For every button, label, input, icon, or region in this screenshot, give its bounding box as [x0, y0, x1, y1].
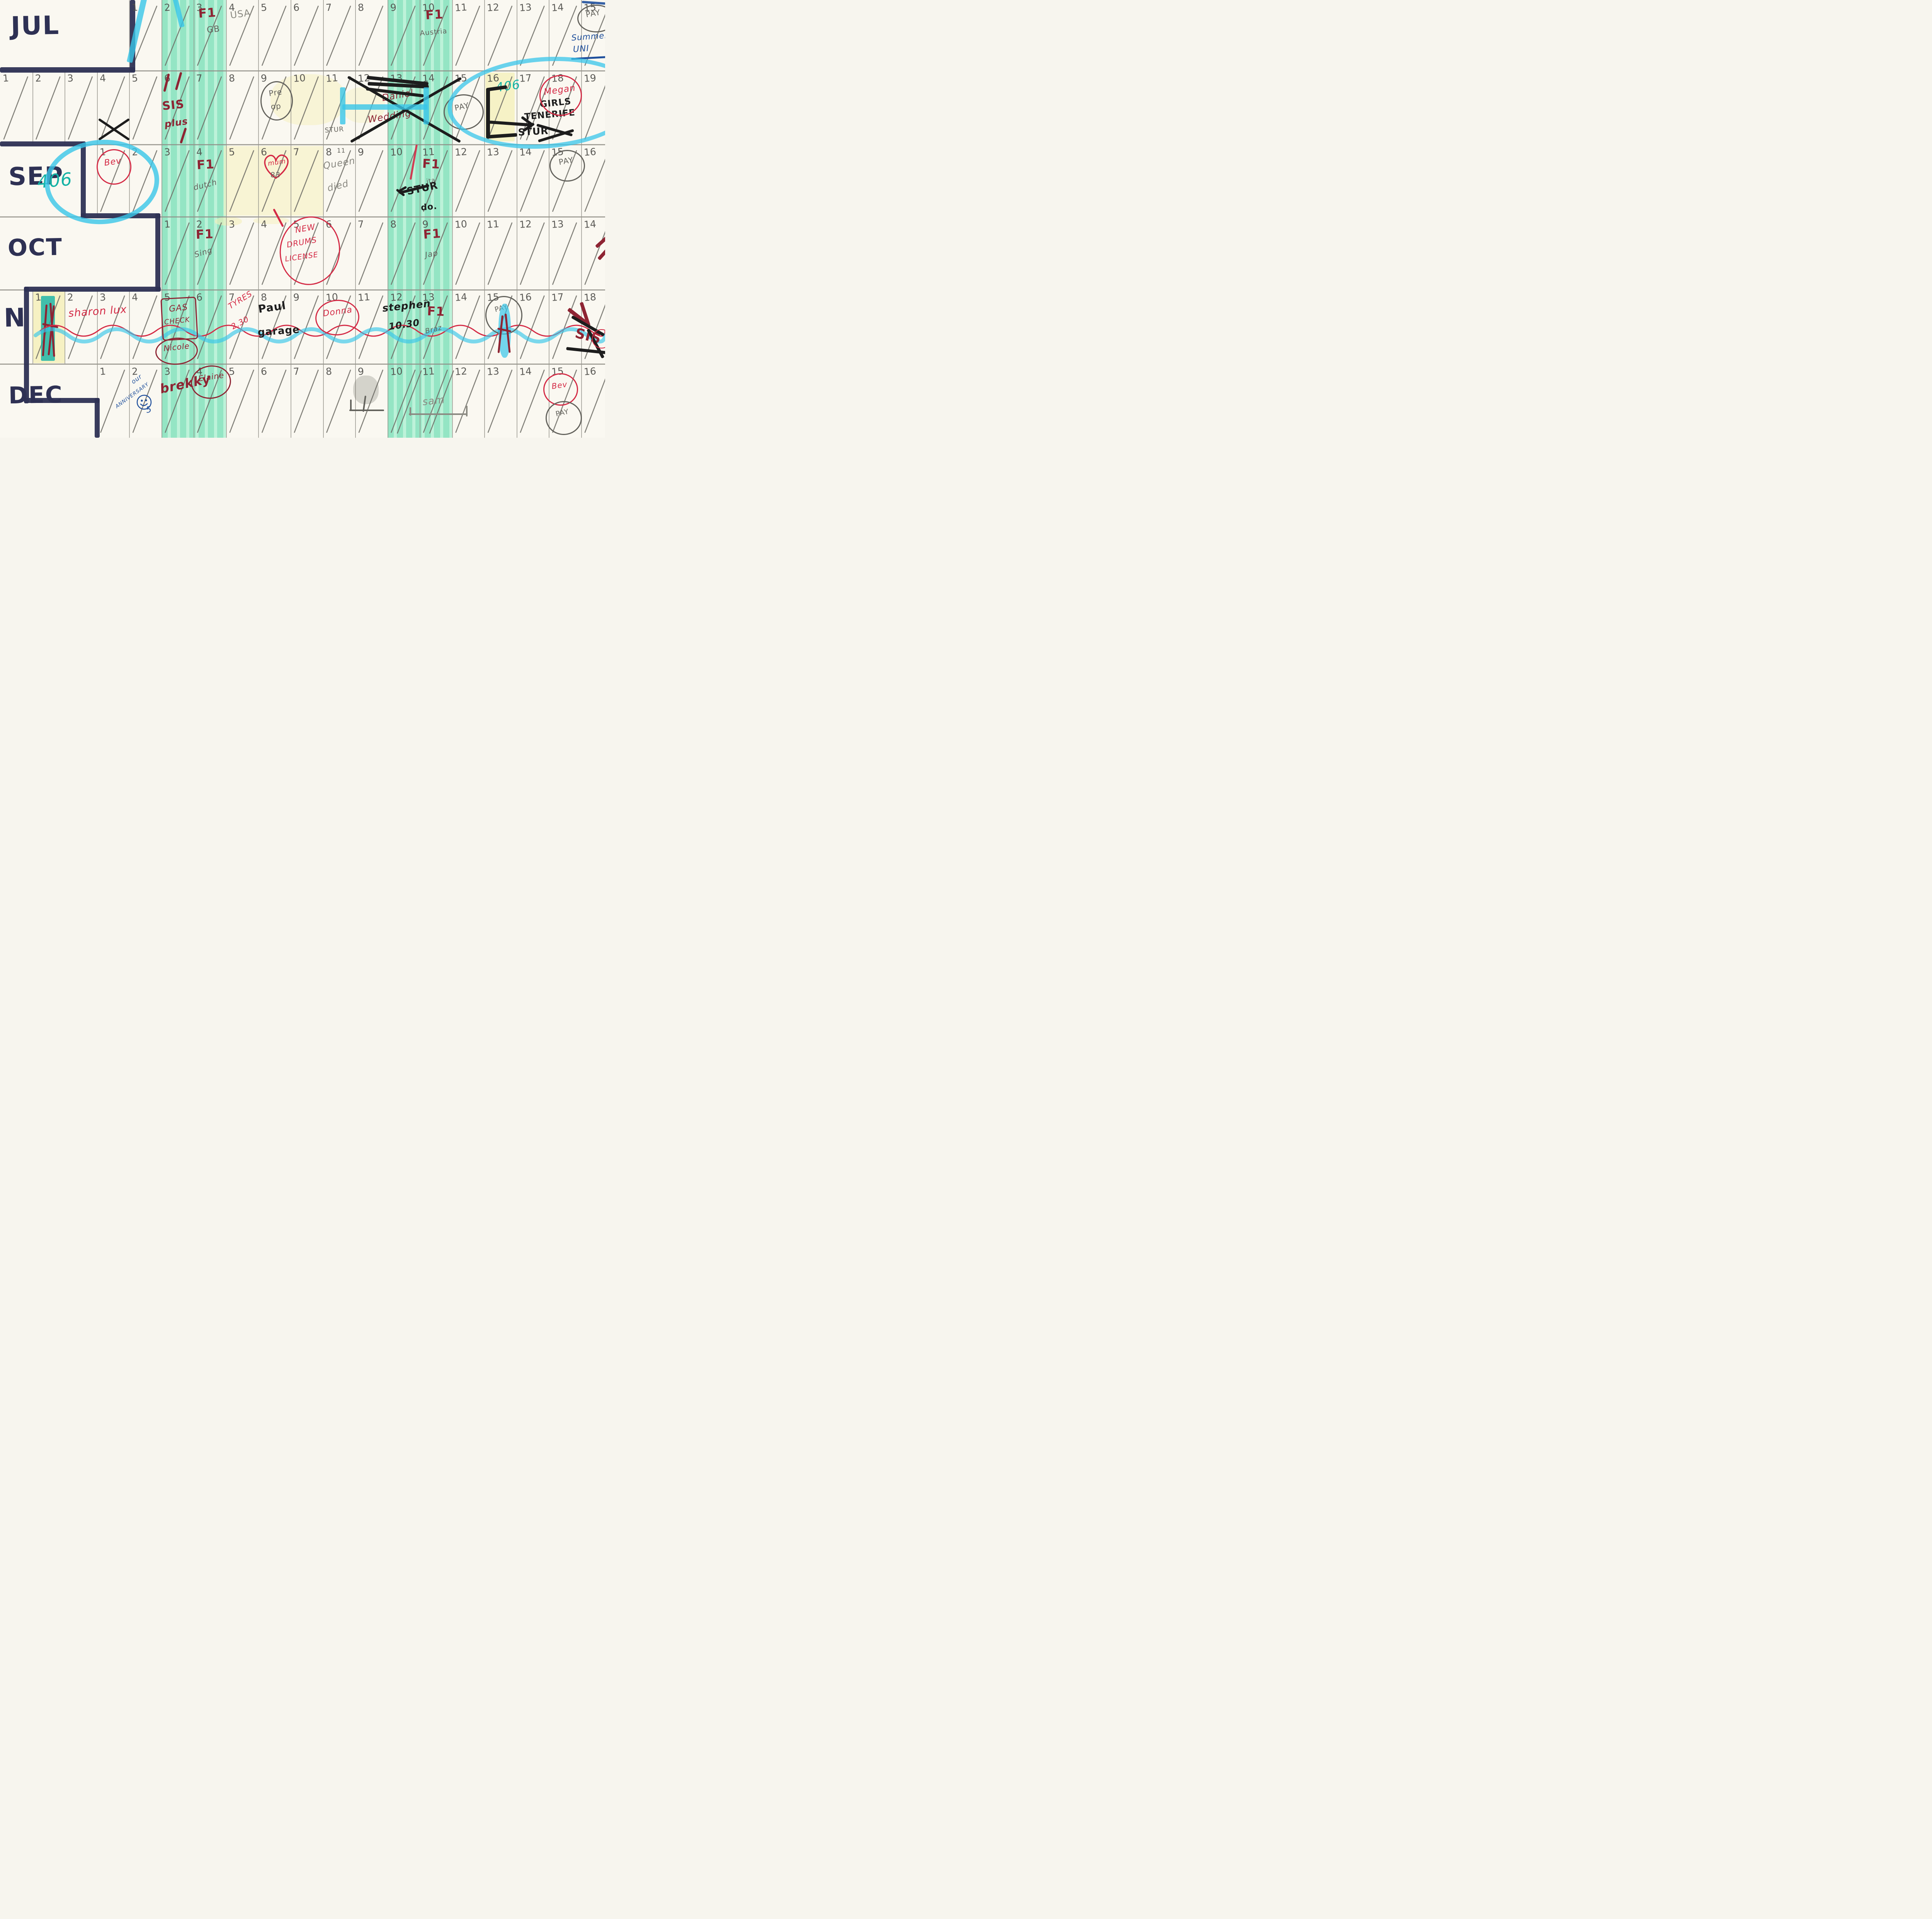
day-slash	[456, 151, 480, 211]
day-number: 3	[164, 365, 171, 377]
day-number: 7	[325, 2, 332, 13]
grid-line	[452, 364, 453, 438]
grid-line	[388, 364, 388, 438]
bev-sep-circle	[97, 149, 131, 185]
grid-line	[323, 364, 324, 438]
day-number: 10	[454, 218, 468, 230]
day-number: 12	[454, 365, 468, 377]
day-slash	[4, 77, 28, 139]
month-divider-marker	[0, 141, 86, 146]
grid-line	[194, 0, 194, 71]
day-number: 9	[390, 2, 397, 13]
grid-line	[549, 290, 549, 364]
grid-line	[484, 364, 485, 438]
grid-line	[194, 71, 194, 144]
day-number: 3	[99, 291, 106, 303]
grid-line	[65, 290, 65, 364]
day-number: 1	[131, 2, 138, 13]
grid-line	[258, 0, 259, 71]
day-slash	[520, 151, 544, 211]
grid-line	[452, 0, 453, 71]
day-number: 13	[551, 218, 564, 230]
day-number: 16	[583, 146, 597, 158]
day-number: 7	[293, 146, 300, 158]
grid-line	[162, 364, 162, 438]
month-label-n: N	[3, 303, 26, 333]
day-number: 9	[357, 146, 364, 158]
month-divider-marker	[155, 213, 160, 291]
day-slash	[520, 296, 544, 359]
grid-line	[291, 144, 291, 217]
f1-austria: F1	[425, 7, 444, 22]
day-number: 17	[551, 291, 564, 303]
day-slash	[456, 296, 480, 359]
grid-line	[517, 217, 517, 290]
day-number: 11	[422, 365, 435, 377]
preop-circle	[260, 81, 293, 121]
day-number: 4	[99, 72, 106, 84]
month-divider-marker	[0, 67, 135, 73]
f1-dutch: F1	[196, 157, 215, 172]
day-slash	[520, 370, 544, 432]
grid-line	[226, 290, 227, 364]
grid-line	[484, 290, 485, 364]
oct-red-edge-1	[595, 235, 605, 248]
day-slash	[585, 370, 605, 432]
uni-label: UNI	[573, 44, 590, 54]
grid-line	[581, 364, 582, 438]
day-number: 11	[454, 2, 468, 14]
day-number: 14	[583, 218, 597, 230]
pay-dec-circle	[546, 401, 582, 435]
day-slash	[133, 296, 157, 359]
summer-label: Summer	[571, 31, 605, 42]
pay-sep-circle	[549, 150, 585, 182]
day-slash	[456, 370, 480, 432]
stur-aug: STUR	[325, 126, 344, 134]
grid-line	[549, 217, 549, 290]
grid-line	[226, 0, 227, 71]
grid-line	[194, 144, 194, 217]
day-number: 5	[228, 146, 235, 158]
day-slash	[520, 223, 544, 284]
day-number: 1	[164, 218, 171, 230]
grid-line	[484, 0, 485, 71]
day-slash	[230, 223, 254, 284]
anniv-label: ANNIVERSARY	[114, 381, 150, 410]
day-number: 1	[2, 72, 9, 84]
day-number: 7	[196, 72, 203, 84]
grid-line	[388, 217, 388, 290]
cyan-ibeam-right	[423, 87, 429, 124]
grid-line	[291, 364, 291, 438]
grid-line	[388, 290, 388, 364]
day-slash	[456, 223, 480, 284]
preop-pre: Pre	[268, 87, 283, 98]
day-number: 1	[99, 365, 106, 377]
day-number: 2	[164, 2, 171, 13]
day-number: 8	[357, 2, 364, 13]
day-slash	[230, 370, 254, 432]
day-number: 8	[390, 218, 397, 230]
grid-line	[355, 0, 356, 71]
stur-do: do.	[420, 202, 438, 213]
month-label-jul: JUL	[10, 10, 60, 41]
grid-line	[452, 144, 453, 217]
grid-line	[388, 0, 388, 71]
month-label-dec: DEC	[8, 381, 63, 409]
tyres-230: 2.30	[230, 314, 250, 331]
dec9-smudge	[353, 376, 379, 404]
day-number: 9	[260, 72, 267, 84]
grid-line	[32, 290, 33, 364]
sam-label: sam	[422, 394, 446, 408]
day-number: 14	[519, 365, 532, 377]
day-slash	[488, 6, 512, 65]
day-slash	[327, 370, 351, 432]
year-planner-sheet: JUL1234567891011121314151234567891011121…	[0, 0, 605, 438]
grid-line	[452, 217, 453, 290]
grid-line	[517, 144, 517, 217]
grid-line	[549, 144, 549, 217]
grid-line	[162, 144, 162, 217]
sam-tick-r	[466, 406, 468, 416]
day-number: 5	[260, 2, 267, 13]
grid-line	[258, 364, 259, 438]
day-number: 11	[325, 72, 338, 84]
gb-label: GB	[206, 24, 221, 35]
day-number: 10	[293, 72, 306, 84]
grid-line	[129, 71, 130, 144]
grid-line	[258, 217, 259, 290]
day-slash	[488, 223, 512, 284]
day-number: 14	[454, 291, 468, 303]
cyan-wave	[36, 331, 605, 339]
grid-line	[484, 144, 485, 217]
day-number: 6	[260, 365, 267, 377]
grid-line	[65, 71, 65, 144]
grid-line	[162, 217, 162, 290]
day-number: 9	[293, 291, 300, 303]
day-number: 13	[486, 365, 500, 377]
donna-circle	[314, 298, 361, 337]
aug4-x	[98, 118, 130, 141]
grid-line	[452, 290, 453, 364]
month-divider-marker	[95, 398, 100, 438]
f1-jap: F1	[423, 226, 442, 242]
day-slash	[585, 151, 605, 211]
garage-label: garage	[257, 324, 300, 338]
grid-line	[420, 364, 420, 438]
day-number: 12	[486, 2, 500, 14]
month-label-oct: OCT	[7, 234, 63, 262]
sep8-extra-11: 11	[337, 147, 345, 154]
day-number: 10	[390, 365, 403, 377]
day-number: 11	[357, 291, 371, 303]
grid-line	[323, 144, 324, 217]
grid-line	[162, 0, 162, 71]
grid-line	[226, 144, 227, 217]
day-slash	[553, 223, 577, 284]
day-number: 6	[293, 2, 300, 13]
day-slash	[294, 6, 318, 65]
day-slash	[488, 370, 512, 432]
day-number: 13	[486, 146, 500, 158]
day-slash	[262, 6, 286, 65]
day-slash	[520, 6, 544, 65]
f1-sing: F1	[196, 226, 214, 242]
day-number: 5	[131, 72, 138, 84]
day-slash	[359, 151, 383, 211]
f1-braz: F1	[427, 304, 445, 319]
grid-line	[97, 290, 98, 364]
day-number: 4	[196, 146, 203, 158]
day-slash	[488, 151, 512, 211]
day-number: 13	[519, 2, 532, 14]
day-slash	[327, 6, 351, 65]
day-number: 8	[228, 72, 235, 84]
cyan-oval-aug	[444, 51, 605, 155]
sam-tick-l	[410, 407, 411, 416]
day-number: 16	[583, 365, 597, 377]
gas-label: GAS	[168, 303, 188, 314]
day-slash	[68, 296, 92, 359]
day-number: 11	[486, 218, 500, 230]
grid-line	[97, 71, 98, 144]
day-number: 14	[551, 2, 564, 14]
grid-line	[291, 0, 291, 71]
grid-line	[355, 144, 356, 217]
sam-line	[409, 413, 468, 415]
grid-line	[355, 217, 356, 290]
day-number: 12	[519, 218, 532, 230]
grid-line	[581, 144, 582, 217]
dec9-line	[349, 410, 384, 411]
day-number: 7	[293, 365, 300, 377]
usa-label: USA	[230, 7, 251, 21]
day-slash	[133, 77, 157, 139]
preop-op: op	[270, 101, 282, 111]
day-number: 3	[228, 218, 235, 230]
day-number: 2	[67, 291, 74, 303]
grid-line	[226, 71, 227, 144]
day-number: 4	[260, 218, 267, 230]
day-number: 3	[164, 146, 171, 158]
day-slash	[456, 6, 480, 65]
day-number: 12	[454, 146, 468, 158]
day-slash	[359, 296, 383, 359]
day-number: 7	[357, 218, 364, 230]
grid-line	[129, 290, 130, 364]
grid-line	[517, 364, 517, 438]
grid-line	[0, 364, 605, 365]
f1-gb: F1	[198, 5, 217, 21]
month-divider-marker	[24, 287, 161, 292]
grid-line	[484, 217, 485, 290]
grid-line	[581, 217, 582, 290]
cyan-ibeam-left	[340, 87, 345, 124]
day-slash	[294, 370, 318, 432]
cyan-ibeam-h	[342, 104, 427, 110]
day-number: 8	[325, 146, 332, 158]
f1-ita: F1	[422, 156, 440, 172]
day-slash	[230, 77, 254, 139]
day-slash	[101, 77, 125, 139]
day-number: 8	[325, 365, 332, 377]
day-slash	[68, 77, 92, 139]
day-number: 18	[583, 291, 597, 303]
day-slash	[262, 370, 286, 432]
grid-line	[32, 71, 33, 144]
day-slash	[36, 77, 60, 139]
mum-83: 83	[270, 171, 281, 179]
day-number: 2	[35, 72, 42, 84]
sharon-lux: sharon lux	[68, 303, 127, 320]
day-number: 16	[519, 291, 532, 303]
day-number: 1	[35, 291, 42, 303]
anniv-5: 5	[145, 405, 153, 415]
died-label: died	[326, 178, 350, 194]
grid-line	[388, 144, 388, 217]
sis-plus-sis: SIS	[162, 97, 185, 113]
oct-red-edge-2	[597, 246, 605, 260]
grid-line	[420, 217, 420, 290]
day-number: 6	[196, 291, 203, 303]
day-number: 10	[390, 146, 403, 158]
grid-line	[226, 217, 227, 290]
day-slash	[359, 223, 383, 284]
grid-line	[258, 71, 259, 144]
day-number: 3	[67, 72, 74, 84]
sep-yellow	[224, 146, 323, 216]
day-slash	[359, 6, 383, 65]
grid-line	[355, 364, 356, 438]
day-number: 6	[260, 146, 267, 158]
grid-line	[323, 71, 324, 144]
day-number: 4	[131, 291, 138, 303]
grid-line	[323, 0, 324, 71]
grid-line	[258, 144, 259, 217]
